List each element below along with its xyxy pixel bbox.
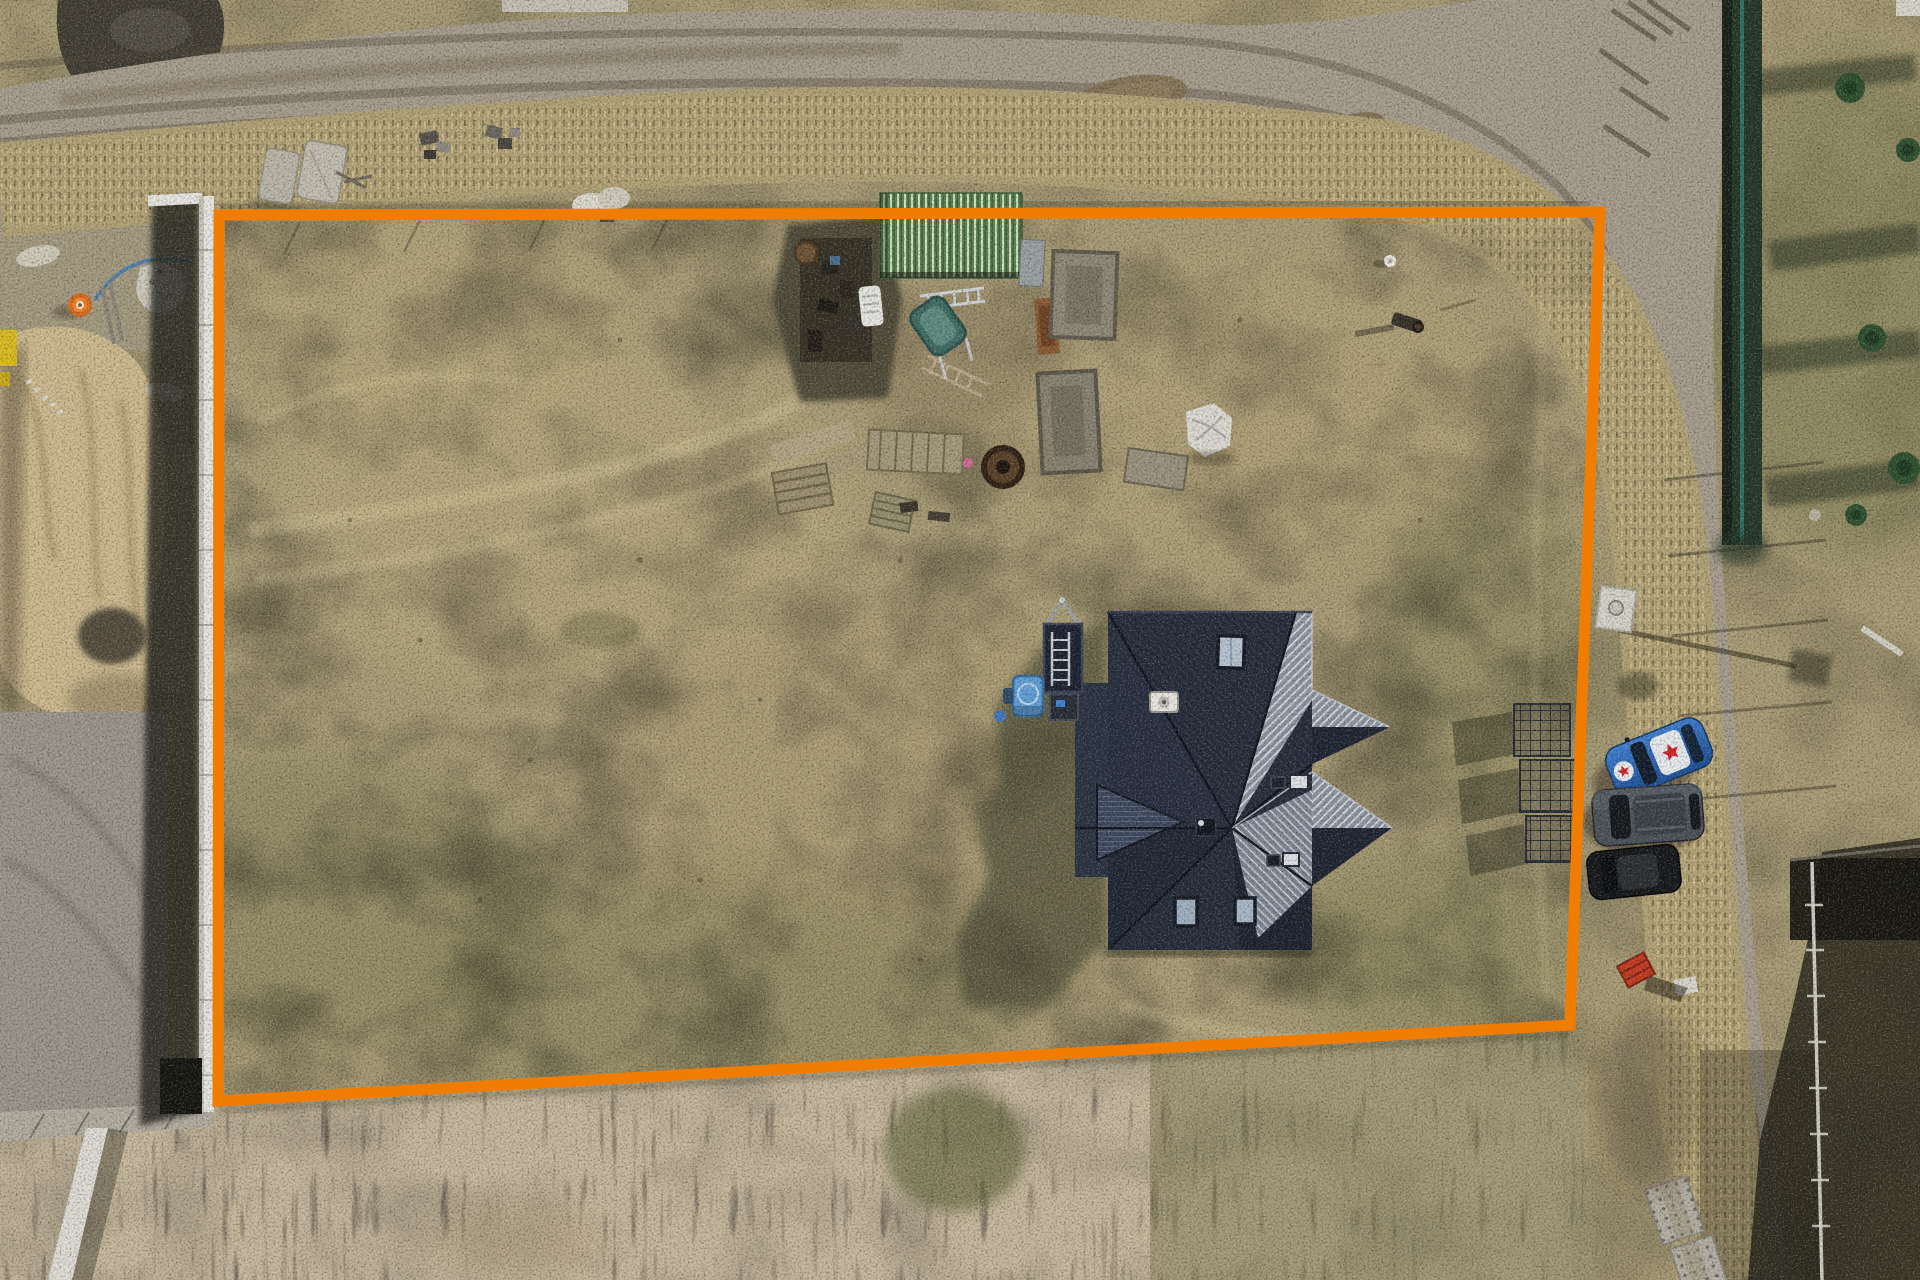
aerial-photo-canvas <box>0 0 1920 1280</box>
aerial-photo <box>0 0 1920 1280</box>
photo-grain-light <box>0 0 1920 1280</box>
